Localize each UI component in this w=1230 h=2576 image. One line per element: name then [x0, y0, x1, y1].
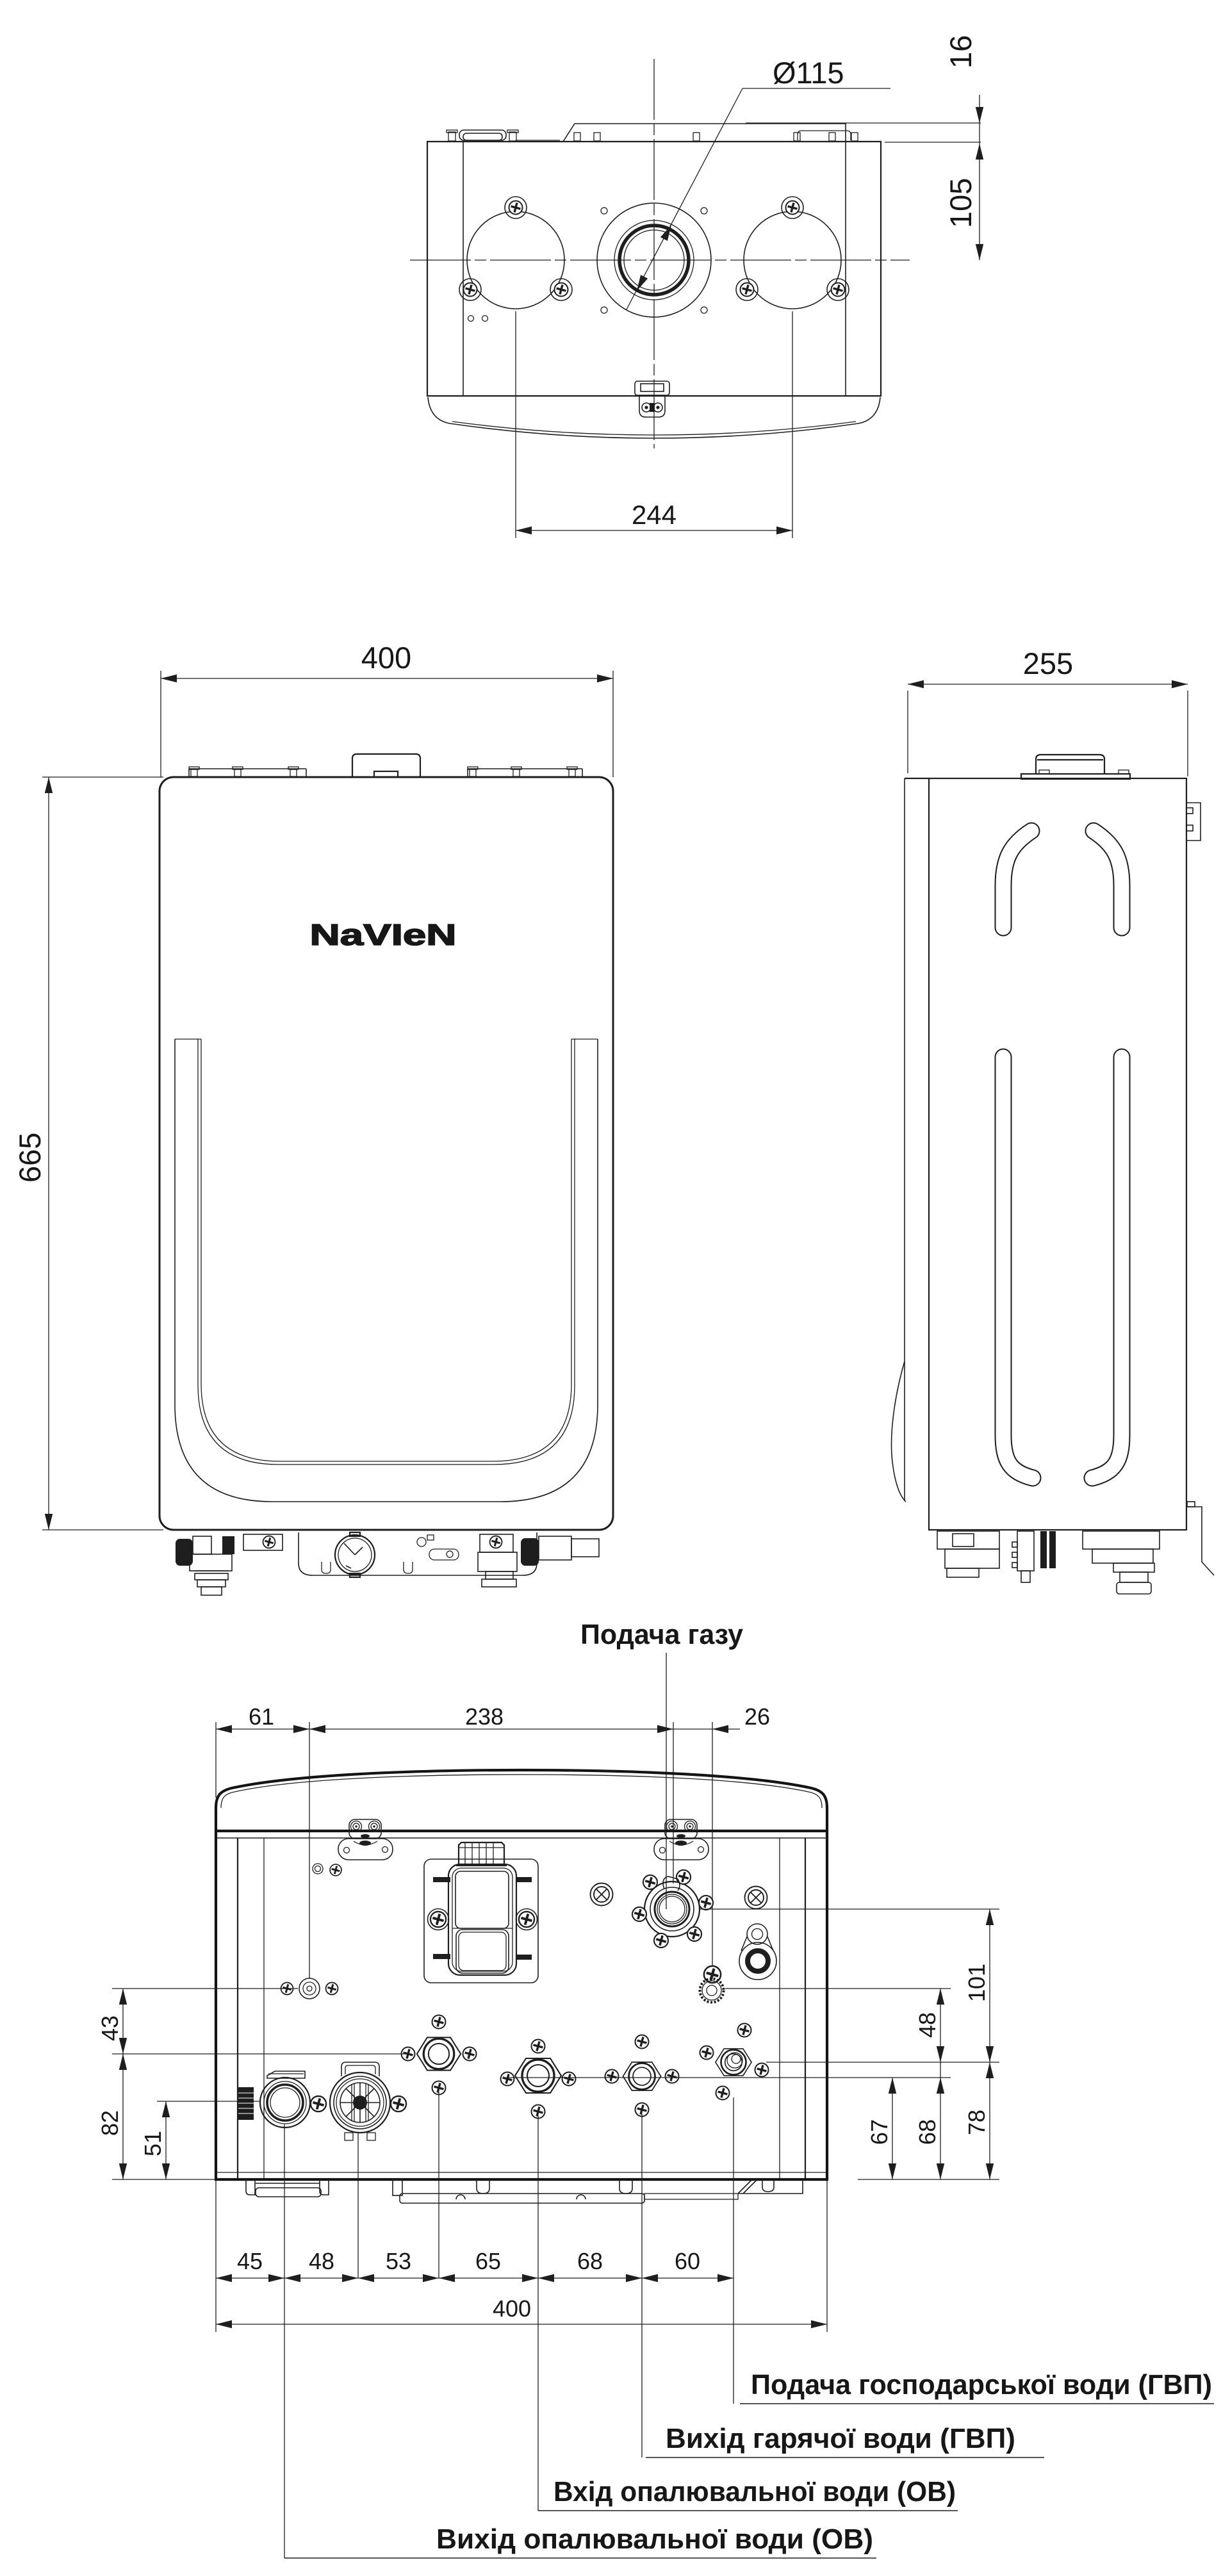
svg-text:48: 48	[309, 2248, 334, 2274]
svg-text:61: 61	[249, 1703, 274, 1730]
svg-text:48: 48	[914, 2012, 940, 2038]
svg-text:Вхід опалювальної води (ОВ): Вхід опалювальної води (ОВ)	[553, 2476, 956, 2507]
svg-text:26: 26	[744, 1703, 770, 1730]
svg-text:400: 400	[361, 641, 411, 675]
svg-text:68: 68	[577, 2248, 603, 2274]
svg-text:NaVIeN: NaVIeN	[310, 918, 457, 951]
svg-text:255: 255	[1023, 646, 1073, 680]
svg-text:60: 60	[675, 2248, 700, 2274]
svg-text:82: 82	[97, 2110, 123, 2136]
svg-text:244: 244	[632, 500, 676, 530]
svg-text:53: 53	[386, 2248, 411, 2274]
svg-text:665: 665	[13, 1133, 47, 1183]
svg-text:78: 78	[963, 2110, 990, 2135]
svg-text:43: 43	[97, 2015, 123, 2041]
svg-text:Вихід гарячої води (ГВП): Вихід гарячої води (ГВП)	[666, 2423, 1015, 2454]
svg-text:68: 68	[914, 2119, 940, 2145]
svg-text:Ø115: Ø115	[773, 56, 844, 90]
svg-text:65: 65	[475, 2248, 501, 2274]
svg-text:101: 101	[963, 1964, 990, 2002]
svg-text:67: 67	[866, 2119, 892, 2145]
svg-text:16: 16	[944, 35, 978, 69]
svg-text:400: 400	[493, 2295, 531, 2322]
svg-text:51: 51	[140, 2131, 166, 2156]
svg-text:105: 105	[944, 178, 978, 228]
svg-text:Вихід опалювальної води (ОВ): Вихід опалювальної води (ОВ)	[436, 2523, 873, 2555]
svg-text:45: 45	[237, 2248, 263, 2274]
svg-text:Подача господарської води (ГВП: Подача господарської води (ГВП)	[751, 2369, 1212, 2400]
svg-text:238: 238	[465, 1703, 504, 1730]
svg-text:Подача газу: Подача газу	[580, 1619, 744, 1650]
